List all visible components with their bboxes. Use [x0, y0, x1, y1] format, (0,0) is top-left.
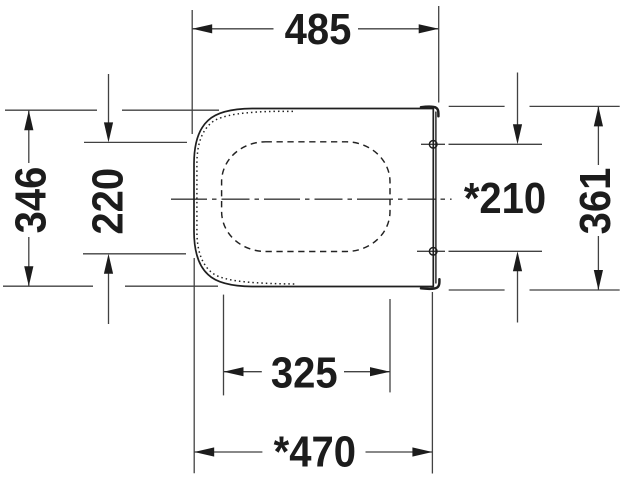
svg-text:361: 361 — [571, 168, 620, 235]
svg-text:*210: *210 — [464, 174, 546, 223]
svg-text:*470: *470 — [274, 427, 356, 476]
svg-text:220: 220 — [83, 168, 132, 235]
svg-text:485: 485 — [285, 4, 352, 53]
svg-text:346: 346 — [6, 167, 55, 234]
svg-text:325: 325 — [271, 348, 338, 397]
